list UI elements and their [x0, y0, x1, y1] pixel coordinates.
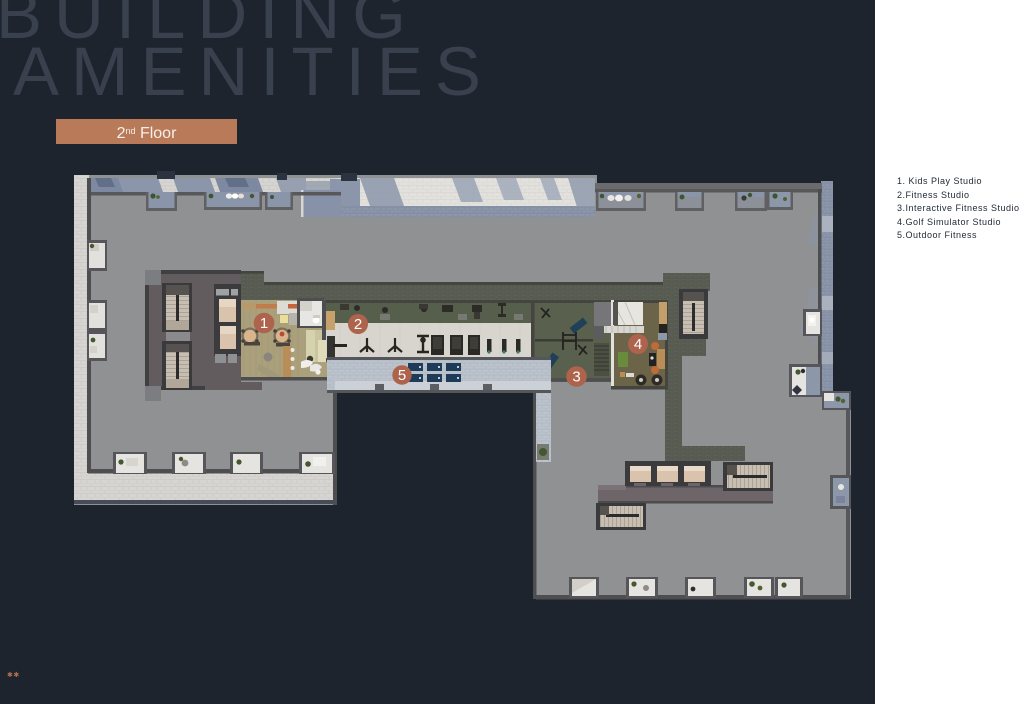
svg-text:3: 3 — [572, 369, 580, 386]
svg-text:5: 5 — [398, 367, 406, 384]
svg-text:2: 2 — [354, 316, 362, 333]
svg-text:1: 1 — [260, 315, 268, 332]
svg-text:4: 4 — [634, 336, 642, 353]
